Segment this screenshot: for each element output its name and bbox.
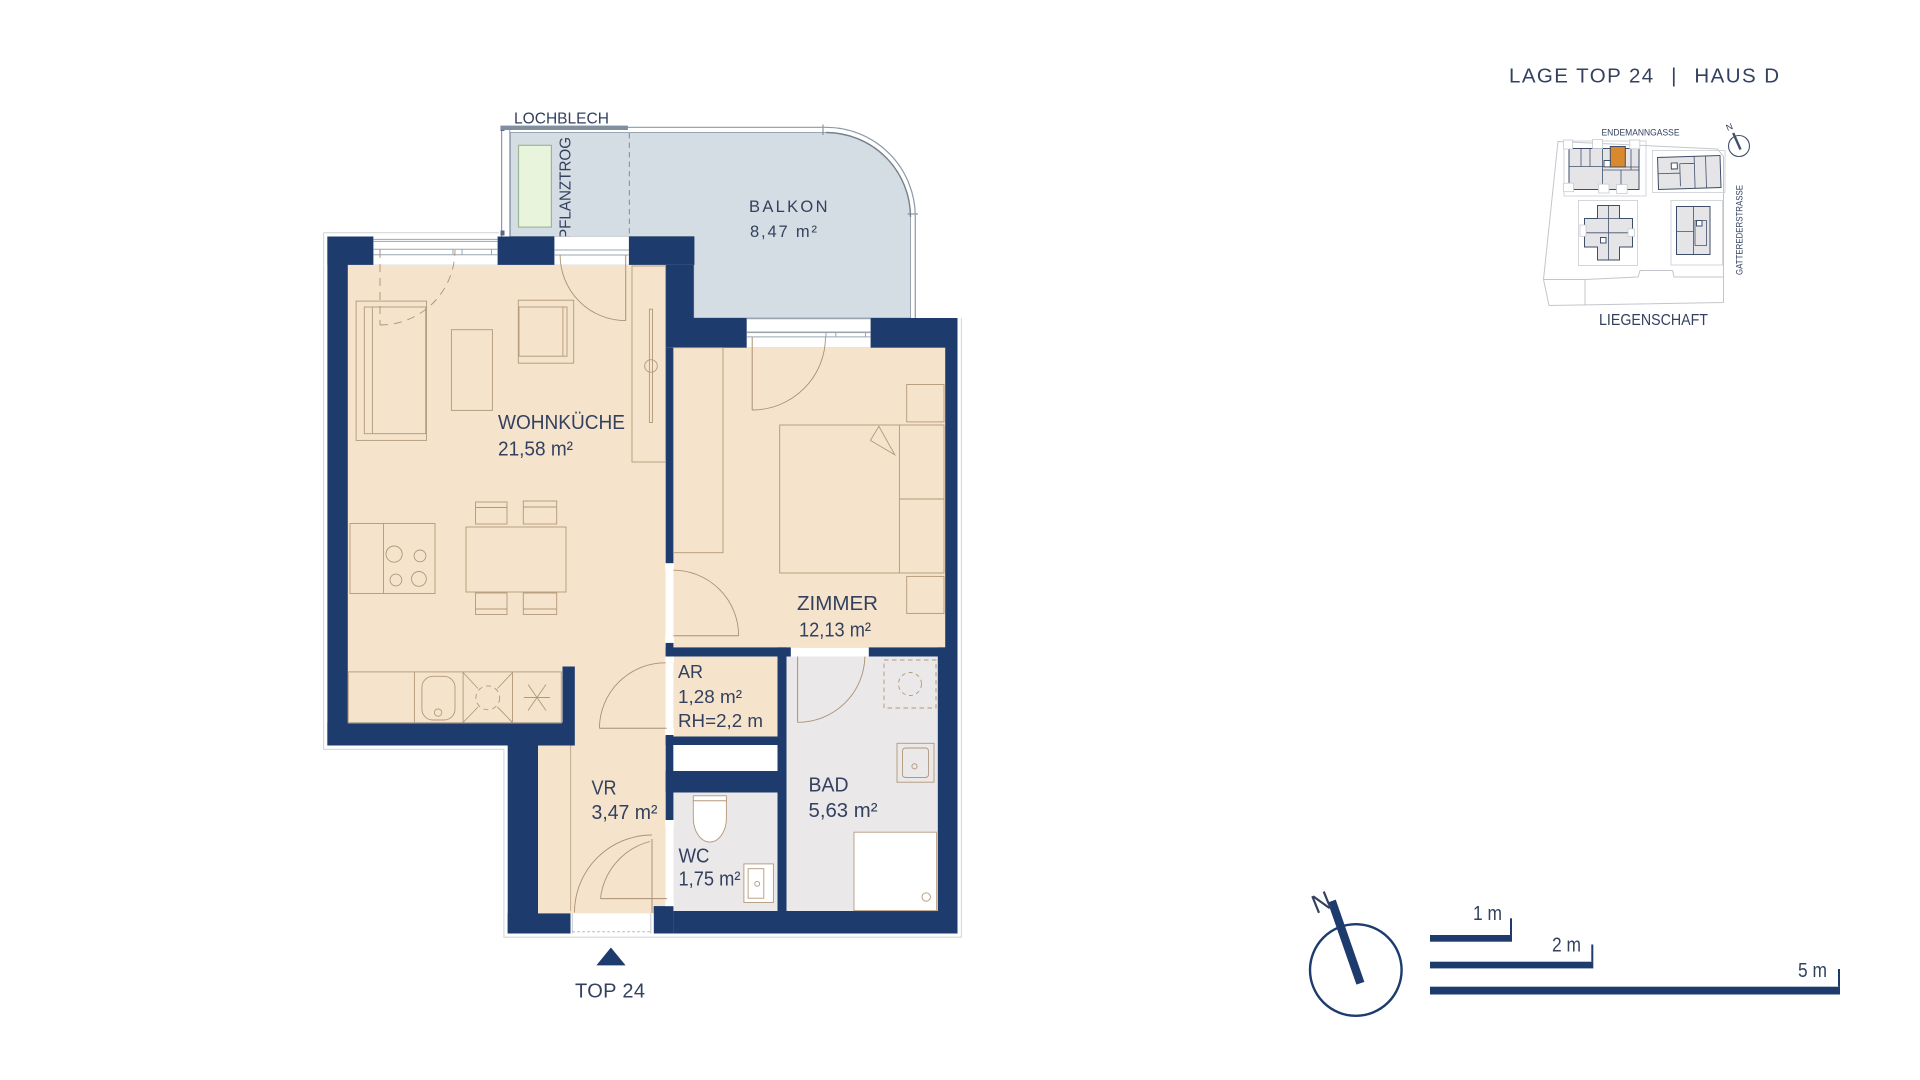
svg-text:1,75 m²: 1,75 m² — [679, 869, 741, 891]
svg-text:ZIMMER: ZIMMER — [797, 593, 878, 615]
svg-text:AR: AR — [678, 661, 703, 682]
svg-text:5,63 m²: 5,63 m² — [809, 800, 878, 822]
svg-text:WC: WC — [679, 846, 710, 868]
svg-text:WOHNKÜCHE: WOHNKÜCHE — [498, 412, 625, 434]
svg-text:LIEGENSCHAFT: LIEGENSCHAFT — [1599, 312, 1708, 329]
svg-text:21,58 m²: 21,58 m² — [498, 439, 573, 461]
svg-text:VR: VR — [592, 778, 617, 800]
svg-text:1,28 m²: 1,28 m² — [678, 686, 742, 707]
svg-text:5 m: 5 m — [1798, 960, 1827, 982]
svg-text:2 m: 2 m — [1552, 935, 1581, 957]
svg-text:PFLANZTROG: PFLANZTROG — [558, 137, 575, 239]
svg-text:12,13 m²: 12,13 m² — [799, 619, 871, 641]
svg-text:3,47 m²: 3,47 m² — [592, 802, 658, 824]
svg-text:8,47 m²: 8,47 m² — [750, 223, 818, 241]
svg-text:TOP 24: TOP 24 — [575, 981, 645, 1003]
svg-text:RH=2,2 m: RH=2,2 m — [678, 710, 763, 731]
svg-text:ENDEMANNGASSE: ENDEMANNGASSE — [1602, 128, 1680, 139]
svg-text:GATTEREDERSTRASSE: GATTEREDERSTRASSE — [1735, 185, 1746, 275]
svg-text:1 m: 1 m — [1473, 903, 1502, 925]
svg-text:LOCHBLECH: LOCHBLECH — [514, 111, 609, 128]
svg-text:LAGE TOP 24 | HAUS D: LAGE TOP 24 | HAUS D — [1509, 65, 1779, 88]
svg-text:BAD: BAD — [809, 775, 849, 797]
